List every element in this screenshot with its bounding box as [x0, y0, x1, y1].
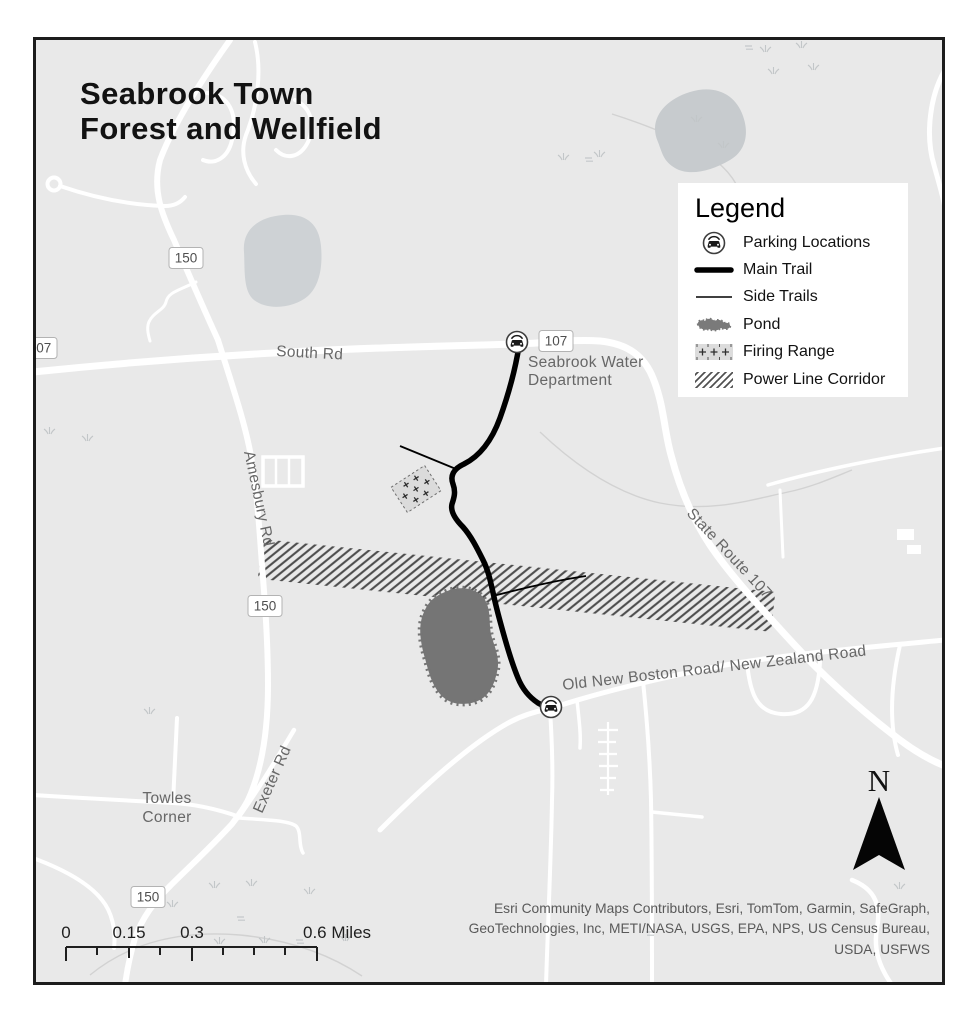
route-shield-107-south-rd: 107 — [539, 331, 573, 352]
svg-text:150: 150 — [254, 599, 277, 614]
scale-label-03: 0.3 — [180, 923, 204, 942]
legend-item-power-line: Power Line Corridor — [678, 366, 908, 393]
main-trail-swatch — [694, 265, 734, 275]
label-towles-corner-2: Corner — [142, 809, 191, 826]
legend-label: Firing Range — [743, 343, 835, 361]
legend-label: Parking Locations — [743, 234, 870, 252]
parking-icon-north — [507, 332, 528, 353]
label-south-rd: South Rd — [276, 343, 344, 363]
side-trail-west — [400, 446, 456, 469]
attribution: Esri Community Maps Contributors, Esri, … — [469, 899, 930, 961]
route-shield-150-amesbury: 150 — [248, 596, 282, 617]
legend-item-side-trails: Side Trails — [678, 284, 908, 311]
attribution-line: Esri Community Maps Contributors, Esri, … — [469, 899, 930, 920]
page: { "title": {"line1": "Seabrook Town", "l… — [0, 0, 979, 1024]
map-title-line1: Seabrook Town — [80, 76, 382, 111]
pond-swatch — [694, 316, 734, 334]
legend-item-firing-range: Firing Range — [678, 339, 908, 366]
parking-icon-south — [541, 697, 562, 718]
side-trails-swatch — [694, 294, 734, 300]
map-title: Seabrook Town Forest and Wellfield — [80, 76, 382, 146]
attribution-line: GeoTechnologies, Inc, METI/NASA, USGS, E… — [469, 919, 930, 940]
svg-text:107: 107 — [545, 334, 568, 349]
legend: Legend Parking Locations Main Trail — [678, 183, 908, 397]
scale-label-015: 0.15 — [112, 923, 145, 942]
map-frame: 107 107 150 150 150 — [33, 37, 945, 985]
label-water-dept-2: Department — [528, 372, 612, 389]
pond-upper-left — [244, 215, 322, 307]
svg-text:150: 150 — [137, 890, 160, 905]
roads — [36, 40, 942, 982]
route-shield-107-west: 107 — [36, 338, 57, 359]
legend-label: Pond — [743, 316, 780, 334]
structures — [263, 457, 921, 795]
legend-label: Main Trail — [743, 261, 812, 279]
legend-label: Side Trails — [743, 288, 818, 306]
power-line-swatch — [694, 369, 734, 391]
route-shield-150-exeter: 150 — [131, 887, 165, 908]
map-canvas: 107 107 150 150 150 — [36, 40, 942, 982]
label-water-dept-1: Seabrook Water — [528, 354, 644, 371]
svg-text:150: 150 — [175, 251, 198, 266]
legend-item-parking: Parking Locations — [678, 229, 908, 256]
pond-dark — [420, 588, 498, 704]
map-title-line2: Forest and Wellfield — [80, 111, 382, 146]
legend-item-main-trail: Main Trail — [678, 256, 908, 283]
legend-title: Legend — [695, 194, 908, 223]
attribution-line: USDA, USFWS — [469, 940, 930, 961]
parking-icon — [694, 230, 734, 256]
north-arrow-label: N — [868, 763, 890, 798]
legend-item-pond: Pond — [678, 311, 908, 338]
firing-range — [391, 466, 441, 513]
label-towles-corner-1: Towles — [142, 790, 191, 807]
label-amesbury-rd: Amesbury Rd — [240, 449, 277, 548]
north-arrow: N — [853, 763, 905, 870]
scale-label-06-miles: 0.6 Miles — [303, 923, 371, 942]
power-line-corridor — [258, 539, 775, 632]
scale-label-0: 0 — [61, 923, 70, 942]
firing-range-swatch — [694, 341, 734, 363]
svg-text:107: 107 — [36, 341, 51, 356]
route-shield-150-north: 150 — [169, 248, 203, 269]
marsh-pond — [655, 89, 746, 172]
legend-label: Power Line Corridor — [743, 371, 885, 389]
